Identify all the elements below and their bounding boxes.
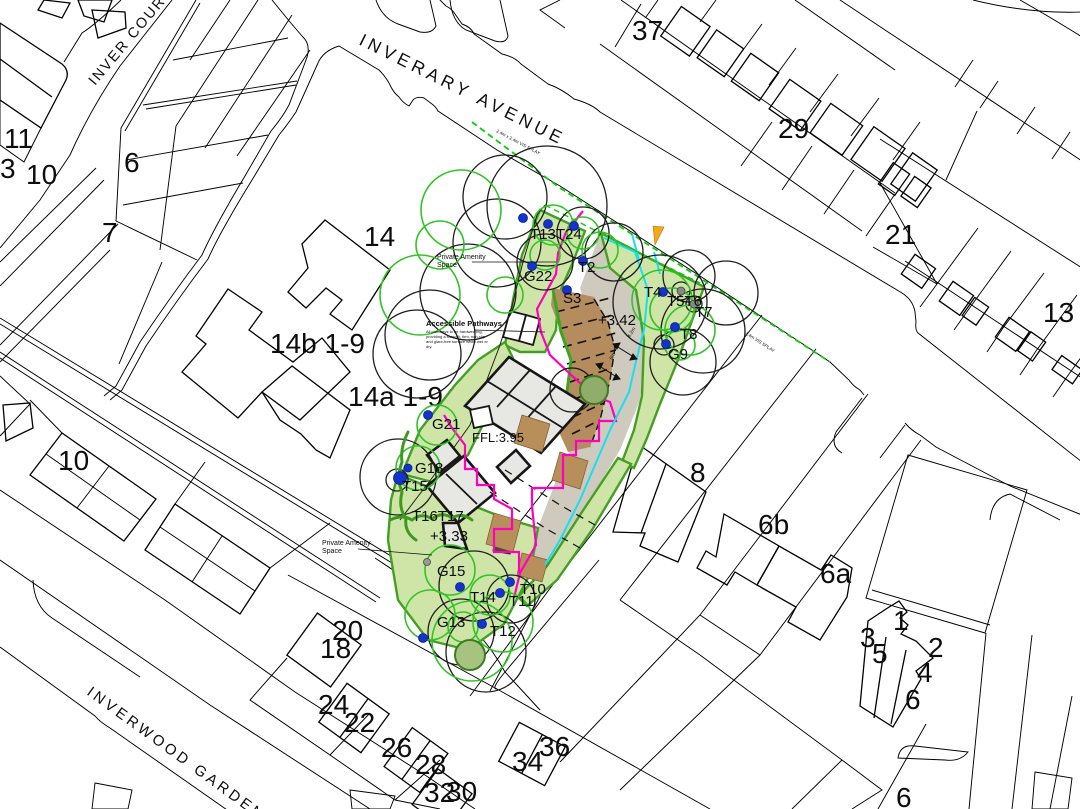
svg-text:and glare-free surface when we: and glare-free surface when wet or xyxy=(426,339,488,344)
svg-text:37: 37 xyxy=(632,15,663,46)
svg-text:13: 13 xyxy=(1043,297,1074,328)
svg-text:+3.33: +3.33 xyxy=(430,528,468,545)
svg-text:22: 22 xyxy=(344,707,375,738)
svg-text:6a: 6a xyxy=(820,558,852,589)
svg-text:10: 10 xyxy=(58,445,89,476)
svg-text:G22: G22 xyxy=(524,268,552,285)
svg-text:14: 14 xyxy=(364,221,395,252)
svg-text:8: 8 xyxy=(690,457,706,488)
svg-text:29: 29 xyxy=(778,113,809,144)
svg-text:11: 11 xyxy=(4,123,33,154)
svg-text:6b: 6b xyxy=(758,509,789,540)
svg-text:T13T24: T13T24 xyxy=(530,226,582,243)
svg-text:6: 6 xyxy=(905,684,921,715)
svg-text:7: 7 xyxy=(102,217,118,248)
svg-text:Private Amenity: Private Amenity xyxy=(322,540,371,547)
svg-text:T4: T4 xyxy=(644,284,662,301)
svg-text:18: 18 xyxy=(320,633,351,664)
svg-text:Accessible Pathways: Accessible Pathways xyxy=(426,319,502,328)
svg-text:10: 10 xyxy=(26,159,57,190)
svg-text:6: 6 xyxy=(896,782,912,809)
svg-text:5: 5 xyxy=(872,638,888,669)
svg-text:S3: S3 xyxy=(563,290,581,307)
svg-text:6: 6 xyxy=(124,147,140,178)
svg-text:G13: G13 xyxy=(437,614,465,631)
svg-text:T7: T7 xyxy=(695,304,713,321)
svg-text:T8: T8 xyxy=(680,326,698,343)
svg-text:36: 36 xyxy=(539,731,570,762)
svg-text:+3.42: +3.42 xyxy=(598,312,636,329)
svg-text:FFL:3.95: FFL:3.95 xyxy=(472,430,524,445)
svg-text:21: 21 xyxy=(885,219,916,250)
svg-text:T2: T2 xyxy=(578,259,596,276)
svg-text:G9: G9 xyxy=(668,346,688,363)
svg-text:T16T17: T16T17 xyxy=(412,508,464,525)
svg-text:30: 30 xyxy=(446,776,477,807)
svg-text:Space: Space xyxy=(322,548,342,555)
svg-text:T14: T14 xyxy=(470,589,496,606)
svg-text:T12: T12 xyxy=(490,623,516,640)
svg-text:14b 1-9: 14b 1-9 xyxy=(270,328,365,359)
svg-text:Space: Space xyxy=(437,262,457,269)
svg-text:26: 26 xyxy=(381,732,412,763)
svg-text:T15: T15 xyxy=(402,478,428,495)
svg-text:G15: G15 xyxy=(437,563,465,580)
svg-text:T11: T11 xyxy=(509,593,534,610)
svg-text:3: 3 xyxy=(0,153,16,184)
svg-text:G21: G21 xyxy=(432,416,460,433)
svg-text:28: 28 xyxy=(415,749,446,780)
svg-text:dry.: dry. xyxy=(426,344,432,349)
svg-text:Private Amenity: Private Amenity xyxy=(437,254,486,261)
svg-text:G18: G18 xyxy=(415,460,443,477)
